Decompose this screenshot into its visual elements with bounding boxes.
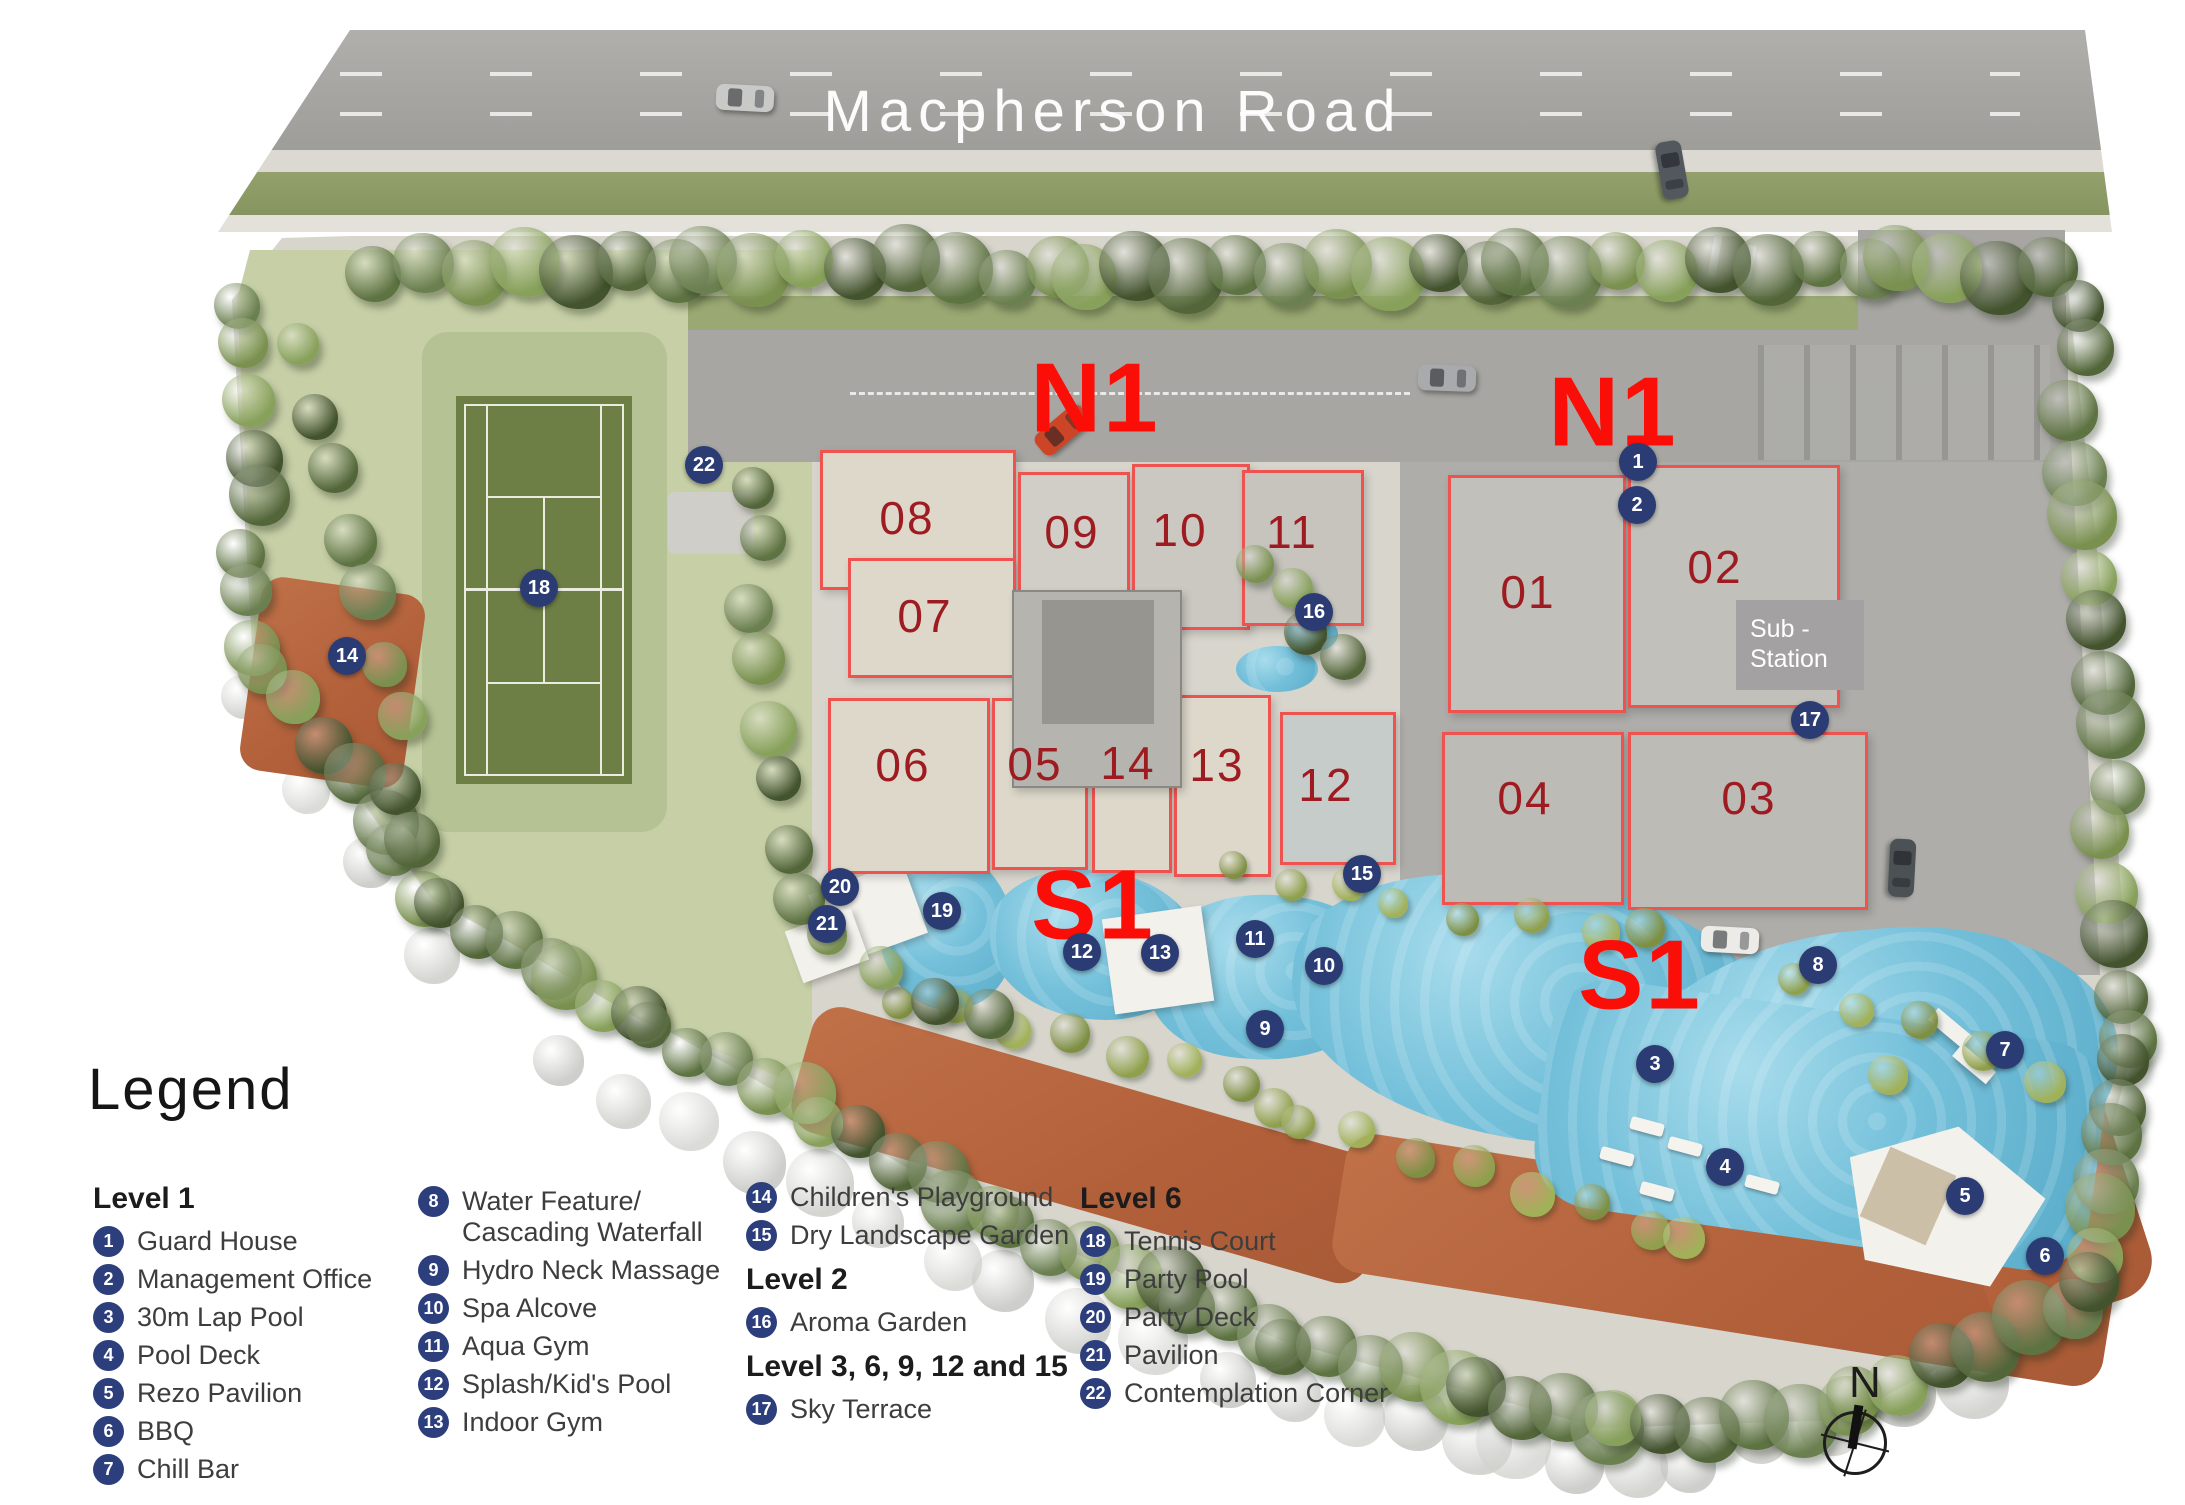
building-number-11: 11	[1266, 505, 1318, 559]
map-marker-3: 3	[1636, 1045, 1674, 1083]
building-number-02: 02	[1687, 540, 1742, 594]
zone-label-n1-1: N1	[1548, 356, 1677, 469]
building-number-01: 01	[1500, 565, 1555, 619]
legend-item-badge: 6	[93, 1416, 124, 1447]
car-windshield	[1713, 930, 1728, 949]
legend-item-label: BBQ	[137, 1416, 194, 1447]
legend-item-19: 19Party Pool	[1080, 1264, 1440, 1295]
palm-tree	[1167, 1043, 1201, 1077]
tree	[220, 564, 272, 616]
legend-column-level2-3: 14Children's Playground15Dry Landscape G…	[746, 1182, 1086, 1432]
car-windshield	[1893, 851, 1912, 866]
legend-item-badge: 18	[1080, 1226, 1111, 1257]
legend-item-badge: 17	[746, 1394, 777, 1425]
legend-item-label: Indoor Gym	[462, 1407, 603, 1438]
map-marker-20: 20	[821, 868, 859, 906]
compass: N	[1791, 1358, 1921, 1498]
building-number-08: 08	[879, 491, 934, 545]
legend-item-badge: 5	[93, 1378, 124, 1409]
tree	[2070, 800, 2129, 859]
legend-item-badge: 16	[746, 1307, 777, 1338]
legend-item-10: 10Spa Alcove	[418, 1293, 753, 1324]
legend-item-label: Hydro Neck Massage	[462, 1255, 720, 1286]
legend-item-label: Water Feature/ Cascading Waterfall	[462, 1186, 703, 1248]
tree	[765, 825, 814, 874]
car-windshield	[728, 88, 743, 107]
car-rear-window	[1457, 369, 1467, 387]
map-marker-11: 11	[1236, 920, 1274, 958]
palm-tree	[1106, 1036, 1149, 1079]
legend-item-badge: 4	[93, 1340, 124, 1371]
legend-item-label: Management Office	[137, 1264, 372, 1295]
compass-north-label: N	[1849, 1358, 1881, 1408]
palm-tree	[1868, 1055, 1909, 1096]
legend-item-badge: 10	[418, 1293, 449, 1324]
legend-item-9: 9Hydro Neck Massage	[418, 1255, 753, 1286]
legend-section-header: Level 1	[93, 1182, 408, 1216]
legend-item-12: 12Splash/Kid's Pool	[418, 1369, 753, 1400]
car	[715, 84, 774, 113]
map-marker-15: 15	[1343, 855, 1381, 893]
building-number-13: 13	[1189, 738, 1244, 792]
map-marker-1: 1	[1619, 443, 1657, 481]
tree	[740, 701, 797, 758]
legend-column-level6: Level 618Tennis Court19Party Pool20Party…	[1080, 1182, 1440, 1416]
car-windshield	[1430, 368, 1445, 386]
legend-item-6: 6BBQ	[93, 1416, 408, 1447]
legend-item-4: 4Pool Deck	[93, 1340, 408, 1371]
palm-tree	[1574, 1184, 1610, 1220]
palm-tree	[1446, 903, 1479, 936]
car-windshield	[1660, 152, 1680, 169]
macpherson-road: Macpherson Road	[200, 30, 2115, 232]
legend-item-label: Children's Playground	[790, 1182, 1053, 1213]
tree	[345, 246, 401, 302]
legend-item-badge: 12	[418, 1369, 449, 1400]
palm-tree	[1275, 869, 1306, 900]
tree-shadow	[659, 1092, 718, 1151]
building-number-06: 06	[875, 738, 930, 792]
tree	[2080, 900, 2148, 968]
map-marker-4: 4	[1706, 1148, 1744, 1186]
palm-tree	[1050, 1013, 1090, 1053]
legend-item-badge: 7	[93, 1454, 124, 1485]
palm-tree	[1901, 1001, 1939, 1039]
map-marker-10: 10	[1305, 947, 1343, 985]
legend-item-label: Aroma Garden	[790, 1307, 967, 1338]
tree	[2059, 1252, 2119, 1312]
legend-item-badge: 11	[418, 1331, 449, 1362]
building-number-03: 03	[1721, 771, 1776, 825]
road-surface: Macpherson Road	[200, 30, 2115, 150]
tree	[2066, 590, 2126, 650]
legend-item-label: Rezo Pavilion	[137, 1378, 302, 1409]
palm-tree	[1223, 1066, 1260, 1103]
legend-item-5: 5Rezo Pavilion	[93, 1378, 408, 1409]
legend-item-badge: 14	[746, 1182, 777, 1213]
legend-item-16: 16Aroma Garden	[746, 1307, 1086, 1338]
tree	[384, 812, 440, 868]
palm-tree	[1378, 888, 1409, 919]
legend-item-label: Aqua Gym	[462, 1331, 590, 1362]
tree	[277, 323, 320, 366]
legend-item-badge: 9	[418, 1255, 449, 1286]
tree	[859, 946, 903, 990]
legend-item-20: 20Party Deck	[1080, 1302, 1440, 1333]
legend-item-2: 2Management Office	[93, 1264, 408, 1295]
car-rear-window	[1665, 178, 1684, 190]
legend-item-badge: 22	[1080, 1378, 1111, 1409]
map-marker-9: 9	[1246, 1010, 1284, 1048]
legend-item-1: 1Guard House	[93, 1226, 408, 1257]
legend-item-badge: 8	[418, 1186, 449, 1217]
zone-label-s1-3: S1	[1578, 919, 1702, 1032]
building-number-14: 14	[1100, 736, 1155, 790]
legend-item-label: Pavilion	[1124, 1340, 1219, 1371]
palm-tree	[1219, 851, 1248, 880]
road-name-label: Macpherson Road	[803, 78, 1423, 145]
tree	[266, 670, 319, 723]
palm-tree	[882, 987, 914, 1019]
legend-column-level1: Level 11Guard House2Management Office330…	[93, 1182, 408, 1492]
car	[1888, 838, 1917, 897]
tree	[740, 515, 786, 561]
legend-item-label: Pool Deck	[137, 1340, 260, 1371]
building-number-05: 05	[1007, 737, 1062, 791]
tree	[1791, 231, 1847, 287]
map-marker-19: 19	[923, 892, 961, 930]
car-rear-window	[1740, 932, 1750, 950]
legend-item-badge: 1	[93, 1226, 124, 1257]
legend-item-8: 8Water Feature/ Cascading Waterfall	[418, 1186, 753, 1248]
legend-item-label: Chill Bar	[137, 1454, 239, 1485]
parking-bays	[1758, 345, 2050, 460]
legend-item-label: Spa Alcove	[462, 1293, 597, 1324]
map-marker-14: 14	[328, 637, 366, 675]
legend-item-3: 330m Lap Pool	[93, 1302, 408, 1333]
map-marker-6: 6	[2026, 1237, 2064, 1275]
tree	[911, 978, 959, 1026]
tree	[222, 374, 275, 427]
legend-item-label: Sky Terrace	[790, 1394, 932, 1425]
legend-column-level1b: 8Water Feature/ Cascading Waterfall9Hydr…	[418, 1186, 753, 1445]
legend-item-15: 15Dry Landscape Garden	[746, 1220, 1086, 1251]
building-number-12: 12	[1298, 758, 1353, 812]
legend-item-label: Guard House	[137, 1226, 298, 1257]
legend-section-header: Level 6	[1080, 1182, 1440, 1216]
building-number-10: 10	[1152, 503, 1207, 557]
tree	[1320, 634, 1367, 681]
legend-item-badge: 2	[93, 1264, 124, 1295]
palm-tree	[1514, 898, 1550, 934]
tree	[724, 584, 774, 634]
legend-item-label: Party Pool	[1124, 1264, 1249, 1295]
legend-item-badge: 20	[1080, 1302, 1111, 1333]
building-number-09: 09	[1044, 505, 1099, 559]
tree	[229, 465, 290, 526]
map-marker-18: 18	[520, 569, 558, 607]
legend-section-header: Level 2	[746, 1263, 1086, 1297]
legend-item-badge: 15	[746, 1220, 777, 1251]
palm-tree	[1453, 1145, 1495, 1187]
legend-item-badge: 13	[418, 1407, 449, 1438]
tree-shadow	[533, 1035, 584, 1086]
palm-tree	[1663, 1217, 1705, 1259]
site-plan-canvas: Macpherson Road	[0, 0, 2185, 1505]
map-marker-17: 17	[1791, 701, 1829, 739]
sub-station-label-line2: Station	[1750, 645, 1828, 673]
building-number-04: 04	[1497, 771, 1552, 825]
legend-title: Legend	[88, 1056, 294, 1123]
legend-item-label: Dry Landscape Garden	[790, 1220, 1069, 1251]
legend-item-label: Splash/Kid's Pool	[462, 1369, 671, 1400]
tree	[324, 514, 377, 567]
map-marker-2: 2	[1618, 486, 1656, 524]
legend-item-label: Party Deck	[1124, 1302, 1256, 1333]
legend-item-14: 14Children's Playground	[746, 1182, 1086, 1213]
legend-item-badge: 19	[1080, 1264, 1111, 1295]
map-marker-12: 12	[1063, 933, 1101, 971]
legend-section-header: Level 3, 6, 9, 12 and 15	[746, 1350, 1086, 1384]
legend-item-badge: 3	[93, 1302, 124, 1333]
tree	[732, 467, 775, 510]
tree	[339, 564, 396, 621]
sub-station: Sub - Station	[1736, 600, 1864, 690]
sidewalk	[200, 150, 2115, 172]
map-marker-5: 5	[1946, 1177, 1984, 1215]
building-number-07: 07	[897, 589, 952, 643]
tree	[308, 443, 358, 493]
palm-tree	[1281, 1105, 1315, 1139]
footpath	[200, 215, 2115, 232]
map-marker-7: 7	[1986, 1031, 2024, 1069]
car-rear-window	[1892, 878, 1910, 888]
palm-tree	[1510, 1172, 1555, 1217]
legend-item-18: 18Tennis Court	[1080, 1226, 1440, 1257]
legend-item-17: 17Sky Terrace	[746, 1394, 1086, 1425]
tree	[369, 763, 421, 815]
palm-tree	[1338, 1111, 1375, 1148]
palm-tree	[1396, 1138, 1436, 1178]
legend-item-7: 7Chill Bar	[93, 1454, 408, 1485]
legend-item-21: 21Pavilion	[1080, 1340, 1440, 1371]
grass-verge	[200, 172, 2115, 215]
clubhouse-roof	[1042, 600, 1154, 724]
tree	[292, 394, 338, 440]
legend-item-label: Contemplation Corner	[1124, 1378, 1388, 1409]
legend-item-label: 30m Lap Pool	[137, 1302, 304, 1333]
tree	[362, 642, 407, 687]
legend-item-11: 11Aqua Gym	[418, 1331, 753, 1362]
tree	[732, 632, 785, 685]
sub-station-label-line1: Sub -	[1750, 615, 1810, 643]
legend-item-22: 22Contemplation Corner	[1080, 1378, 1440, 1409]
car	[1418, 364, 1477, 392]
tree	[756, 756, 801, 801]
tree	[378, 692, 427, 741]
zone-label-n1-0: N1	[1030, 342, 1159, 455]
map-marker-22: 22	[685, 446, 723, 484]
palm-tree	[1839, 993, 1874, 1028]
road-lane-markings	[340, 72, 2020, 76]
car	[1700, 926, 1759, 955]
map-marker-13: 13	[1141, 934, 1179, 972]
tree	[218, 318, 268, 368]
tree-shadow	[596, 1074, 651, 1129]
legend-item-13: 13Indoor Gym	[418, 1407, 753, 1438]
map-marker-16: 16	[1295, 593, 1333, 631]
car-rear-window	[755, 90, 765, 108]
map-marker-21: 21	[808, 905, 846, 943]
legend-item-label: Tennis Court	[1124, 1226, 1276, 1257]
map-marker-8: 8	[1799, 946, 1837, 984]
legend-item-badge: 21	[1080, 1340, 1111, 1371]
